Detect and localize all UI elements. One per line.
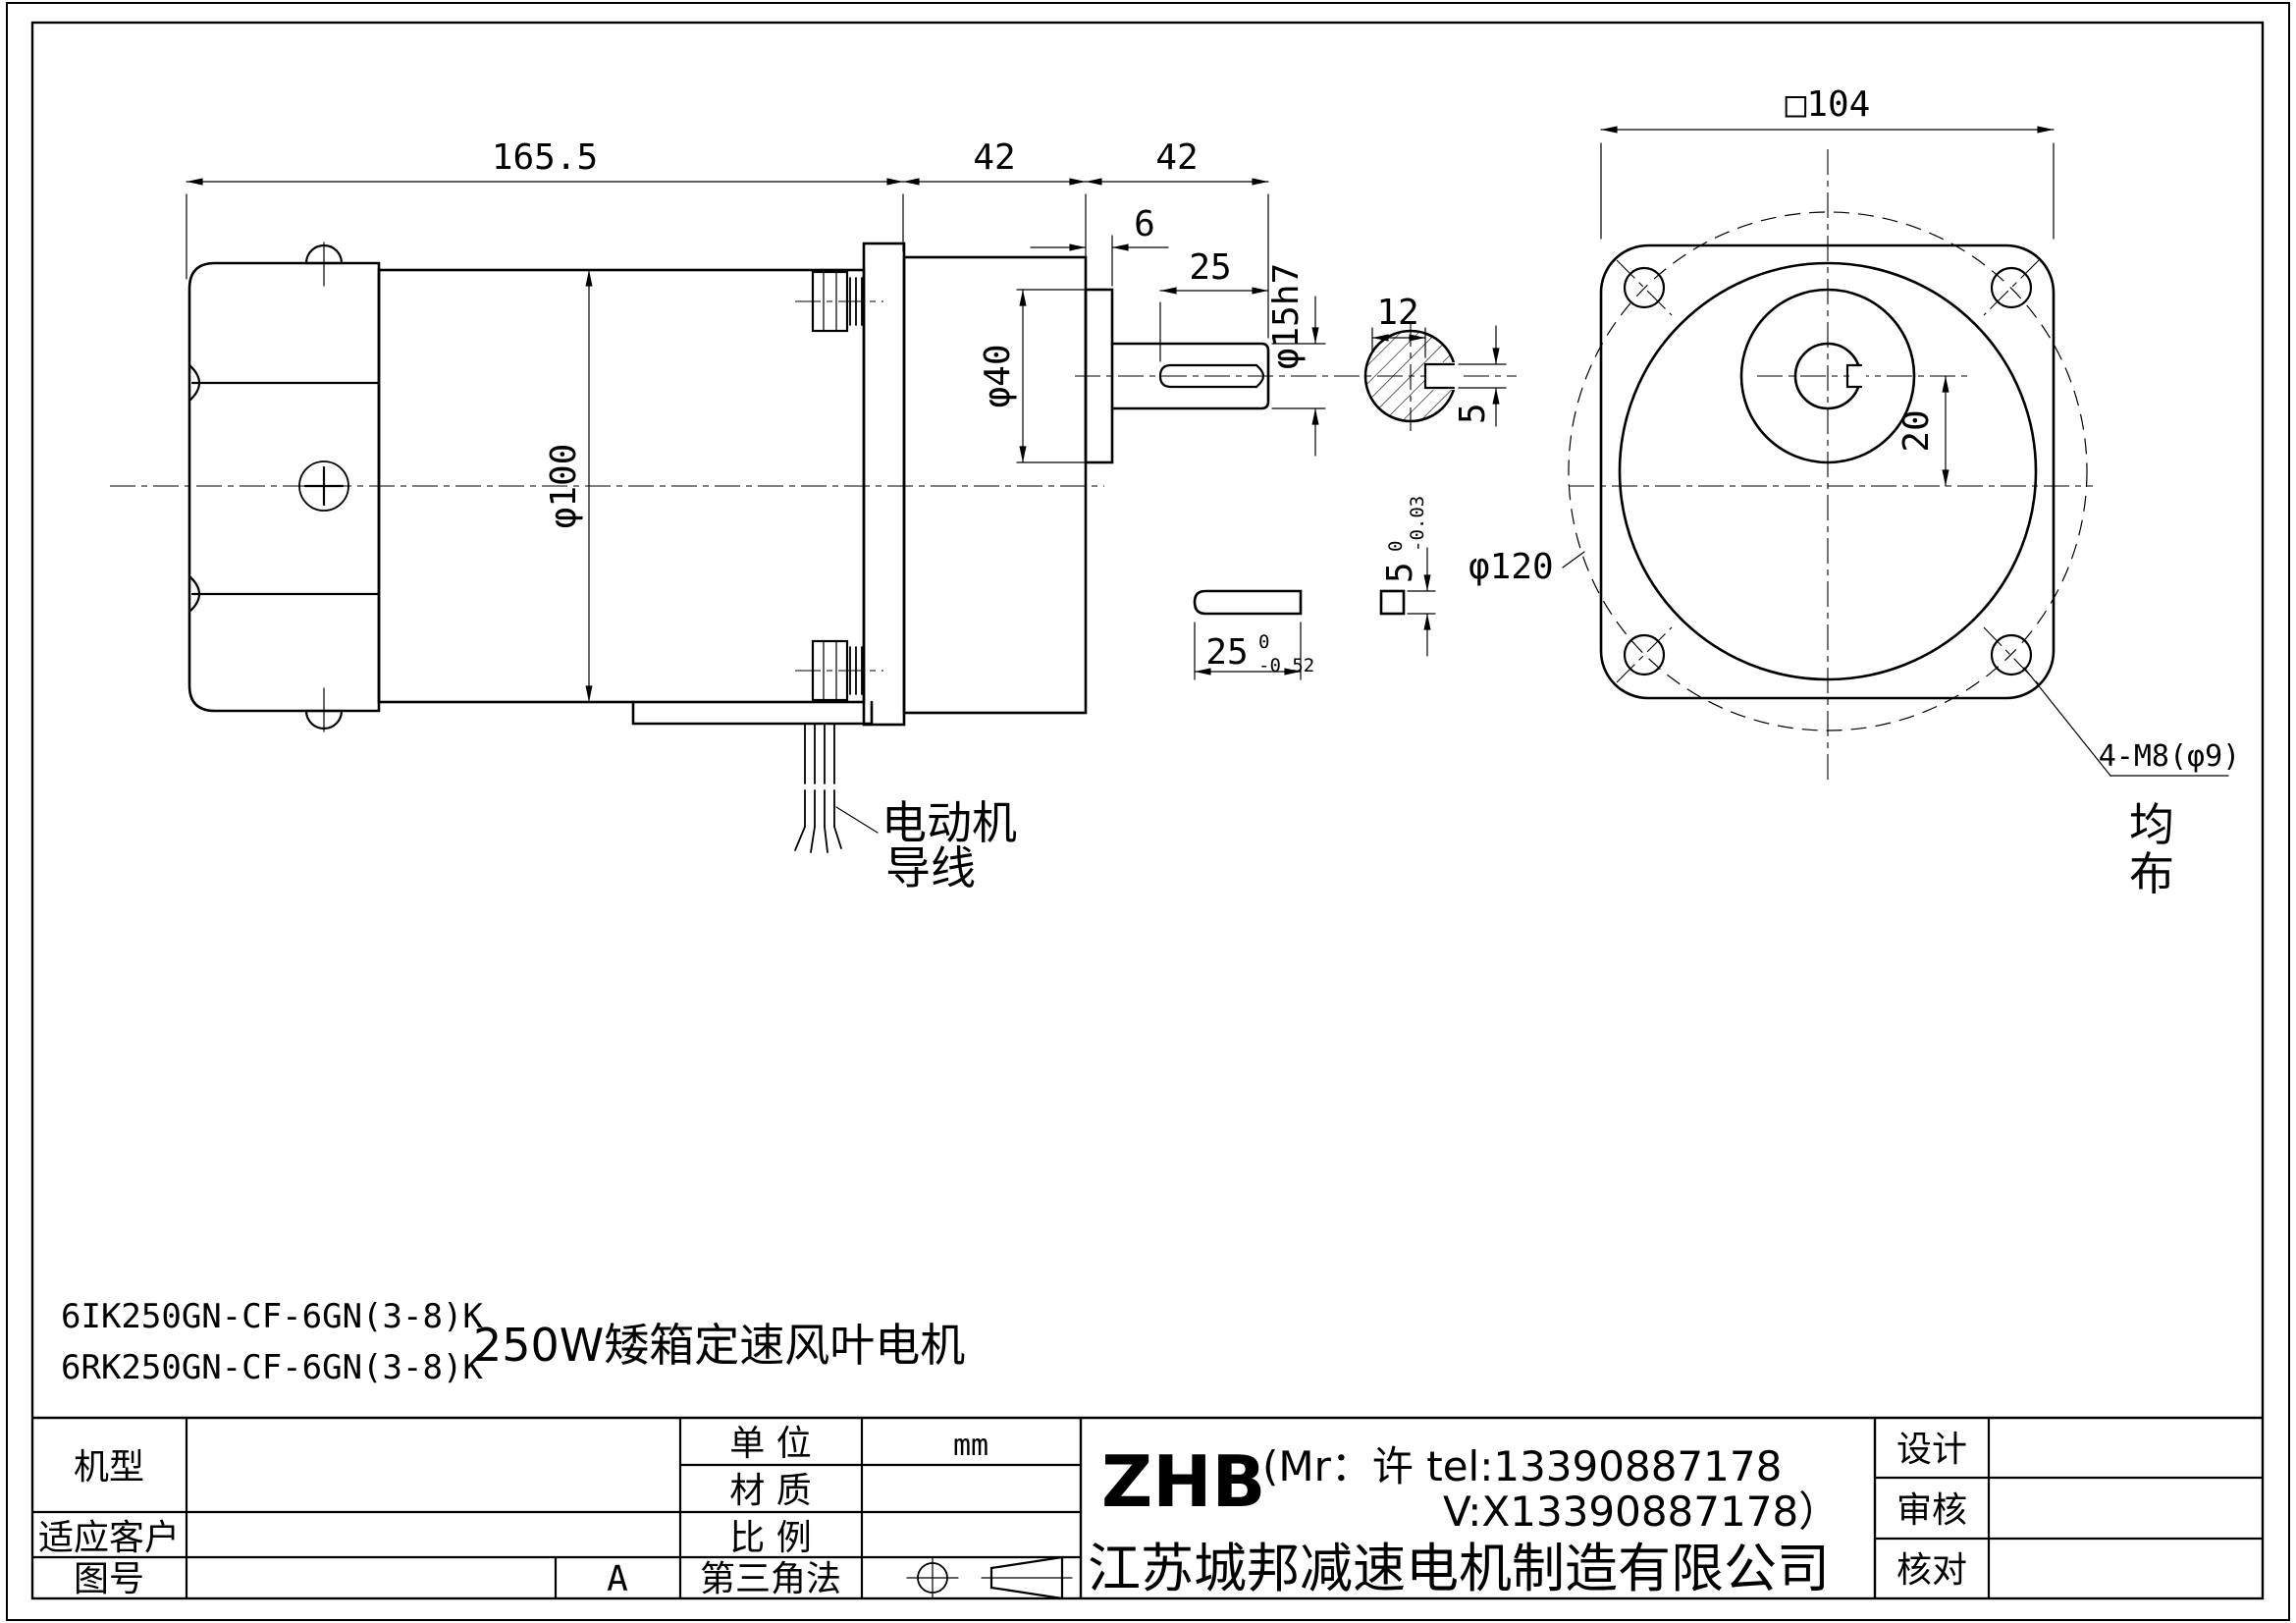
svg-text:5: 5 xyxy=(1380,562,1420,583)
model-line2: 6RK250GN-CF-6GN(3-8)K xyxy=(61,1348,483,1387)
svg-text:25: 25 xyxy=(1189,247,1231,288)
scale-label: 比 例 xyxy=(729,1518,811,1558)
phillips-screw xyxy=(299,461,348,511)
projection-label: 第三角法 xyxy=(700,1559,841,1599)
design-label: 设计 xyxy=(1896,1430,1967,1470)
svg-text:□104: □104 xyxy=(1786,84,1871,125)
model-label: 机型 xyxy=(74,1447,144,1488)
unit-label: 单 位 xyxy=(729,1424,811,1464)
svg-text:6: 6 xyxy=(1134,204,1155,244)
rev-value: A xyxy=(607,1559,628,1599)
material-label: 材 质 xyxy=(729,1471,811,1511)
svg-text:42: 42 xyxy=(1155,137,1198,178)
drawing-canvas: 电动机 导线 165.5 42 42 6 25 xyxy=(0,0,2296,1623)
svg-text:0: 0 xyxy=(1385,541,1407,552)
wire-label-line2: 导线 xyxy=(885,841,976,894)
customer-label: 适应客户 xyxy=(38,1518,180,1558)
holes-label: 4-M8(φ9) xyxy=(2099,739,2241,774)
svg-text:φ120: φ120 xyxy=(1468,547,1554,587)
check-label: 核对 xyxy=(1896,1550,1967,1591)
contact-line2: V:X13390887178） xyxy=(1443,1488,1840,1536)
svg-text:0: 0 xyxy=(1258,631,1269,653)
svg-text:25: 25 xyxy=(1205,632,1248,673)
svg-text:φ15h7: φ15h7 xyxy=(1266,263,1307,369)
svg-text:20: 20 xyxy=(1896,409,1937,452)
model-description: 250W矮箱定速风叶电机 xyxy=(473,1319,965,1372)
unit-value: mm xyxy=(953,1429,988,1463)
svg-text:φ40: φ40 xyxy=(978,344,1018,407)
holes-note-line1: 均 xyxy=(2129,798,2174,851)
model-line1: 6IK250GN-CF-6GN(3-8)K xyxy=(61,1297,483,1336)
svg-text:5: 5 xyxy=(1453,403,1493,424)
holes-note-line2: 布 xyxy=(2129,847,2174,900)
front-keyway-mask xyxy=(1849,364,1866,388)
svg-text:12: 12 xyxy=(1376,293,1418,333)
brand-logo-text: ZHB xyxy=(1101,1440,1265,1523)
svg-text:42: 42 xyxy=(973,137,1015,178)
svg-text:-0.52: -0.52 xyxy=(1258,655,1314,676)
svg-text:165.5: 165.5 xyxy=(492,137,598,178)
svg-text:-0.03: -0.03 xyxy=(1407,496,1428,552)
review-label: 审核 xyxy=(1896,1490,1967,1531)
svg-text:φ100: φ100 xyxy=(544,444,584,529)
section-keyway-mask xyxy=(1425,362,1460,390)
company-name: 江苏城邦减速电机制造有限公司 xyxy=(1088,1538,1830,1599)
drawing-no-label: 图号 xyxy=(74,1559,144,1599)
engineering-drawing-page: 电动机 导线 165.5 42 42 6 25 xyxy=(0,0,2296,1623)
contact-line1: (Mr：许 tel:13390887178 xyxy=(1262,1442,1782,1490)
